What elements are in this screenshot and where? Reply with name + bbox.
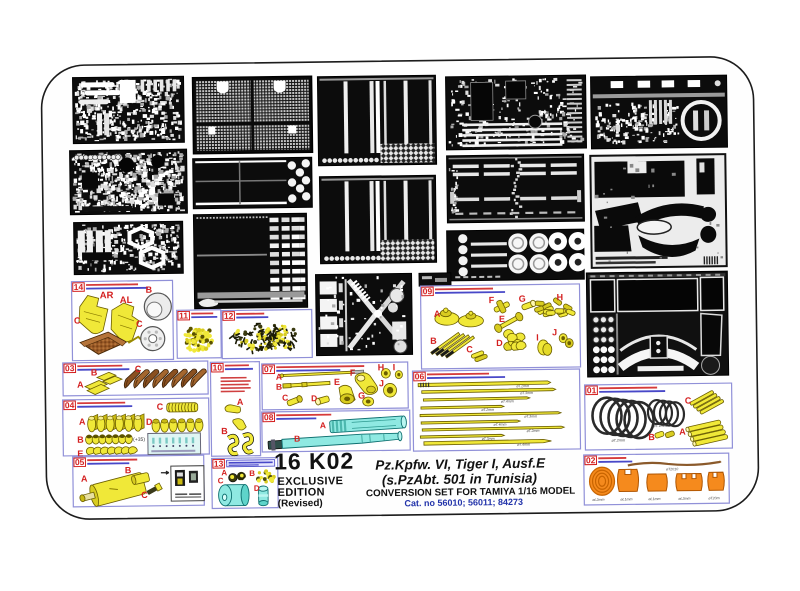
svg-text:A: A [81,474,88,484]
svg-text:A: A [77,380,84,390]
svg-text:07: 07 [264,364,274,374]
svg-text:D: D [254,484,260,493]
svg-text:03: 03 [65,363,75,373]
svg-text:I: I [393,362,396,372]
svg-text:B: B [77,435,84,445]
svg-text:D: D [146,417,153,427]
svg-text:⌀T20m: ⌀T20m [708,496,719,500]
svg-text:⌀L2mm: ⌀L2mm [678,497,690,501]
svg-text:⌀T.3mm: ⌀T.3mm [520,391,533,395]
svg-text:12: 12 [224,311,234,321]
svg-text:10: 10 [213,362,223,372]
svg-text:(Revised): (Revised) [278,498,323,510]
svg-text:E: E [499,314,505,324]
svg-text:Cat. no 56010; 56011; 84273: Cat. no 56010; 56011; 84273 [404,497,523,509]
svg-text:B: B [648,432,655,442]
svg-text:A: A [237,397,244,407]
svg-text:C: C [157,402,164,412]
svg-text:08: 08 [264,412,274,422]
svg-text:B: B [221,426,228,436]
svg-text:⌀T.3mm: ⌀T.3mm [524,414,537,418]
svg-text:⌀L2mm: ⌀L2mm [592,498,604,502]
svg-text:F: F [350,368,356,378]
svg-text:13: 13 [214,459,224,469]
svg-text:16 K02: 16 K02 [274,448,355,475]
svg-text:⌀T.4mm: ⌀T.4mm [501,399,514,403]
svg-text:B: B [125,465,132,475]
svg-text:C: C [136,319,143,329]
svg-text:B: B [146,285,153,295]
svg-text:B: B [276,382,282,392]
svg-text:⌀L1mm: ⌀L1mm [648,497,660,501]
svg-text:02: 02 [586,455,596,465]
svg-text:06: 06 [415,371,425,381]
svg-text:14: 14 [74,282,84,292]
svg-text:H: H [557,292,564,302]
svg-text:05: 05 [75,457,85,467]
svg-text:⌀T.4mm: ⌀T.4mm [493,423,506,427]
svg-text:09: 09 [423,286,433,296]
svg-text:AL: AL [120,295,133,306]
svg-text:A: A [276,372,282,382]
svg-text:⌀T.2mm: ⌀T.2mm [516,384,529,388]
svg-text:B: B [91,367,98,377]
svg-text:E: E [334,377,340,387]
svg-text:⌀T.1mm: ⌀T.1mm [653,424,667,428]
svg-text:⌀T.2mm: ⌀T.2mm [611,438,625,442]
svg-text:01: 01 [587,385,597,395]
svg-text:J: J [552,327,557,337]
svg-text:C: C [685,396,692,406]
svg-text:(+35): (+35) [133,437,145,443]
svg-text:H: H [378,362,385,372]
svg-text:G: G [358,391,365,401]
svg-text:A: A [434,309,441,319]
svg-text:11: 11 [179,310,188,320]
svg-text:(s.PzAbt. 501 in Tunisia): (s.PzAbt. 501 in Tunisia) [382,471,538,488]
svg-text:⌀T2010: ⌀T2010 [666,467,678,471]
svg-text:C: C [74,316,81,326]
svg-text:⌀L1mm: ⌀L1mm [620,497,632,501]
svg-text:C: C [466,344,473,354]
svg-text:C: C [141,490,148,500]
svg-text:B: B [249,469,255,478]
svg-text:C: C [218,476,224,485]
svg-text:F: F [489,295,495,305]
svg-text:D: D [311,393,317,403]
svg-text:AR: AR [100,290,114,301]
svg-text:C: C [135,364,142,374]
svg-text:A: A [320,420,326,430]
svg-text:G: G [519,294,526,304]
svg-text:D: D [496,338,503,348]
svg-text:A: A [679,427,686,437]
svg-text:A: A [79,417,86,427]
svg-text:04: 04 [65,400,75,410]
svg-text:C: C [282,393,288,403]
svg-text:⌀T.2mm: ⌀T.2mm [481,408,494,412]
svg-text:I: I [536,332,539,342]
svg-text:⌀T.4mm: ⌀T.4mm [517,443,530,447]
svg-text:J: J [379,378,384,388]
svg-text:B: B [294,434,300,444]
svg-text:⌀T.2mm: ⌀T.2mm [526,429,539,433]
svg-text:B: B [430,336,437,346]
